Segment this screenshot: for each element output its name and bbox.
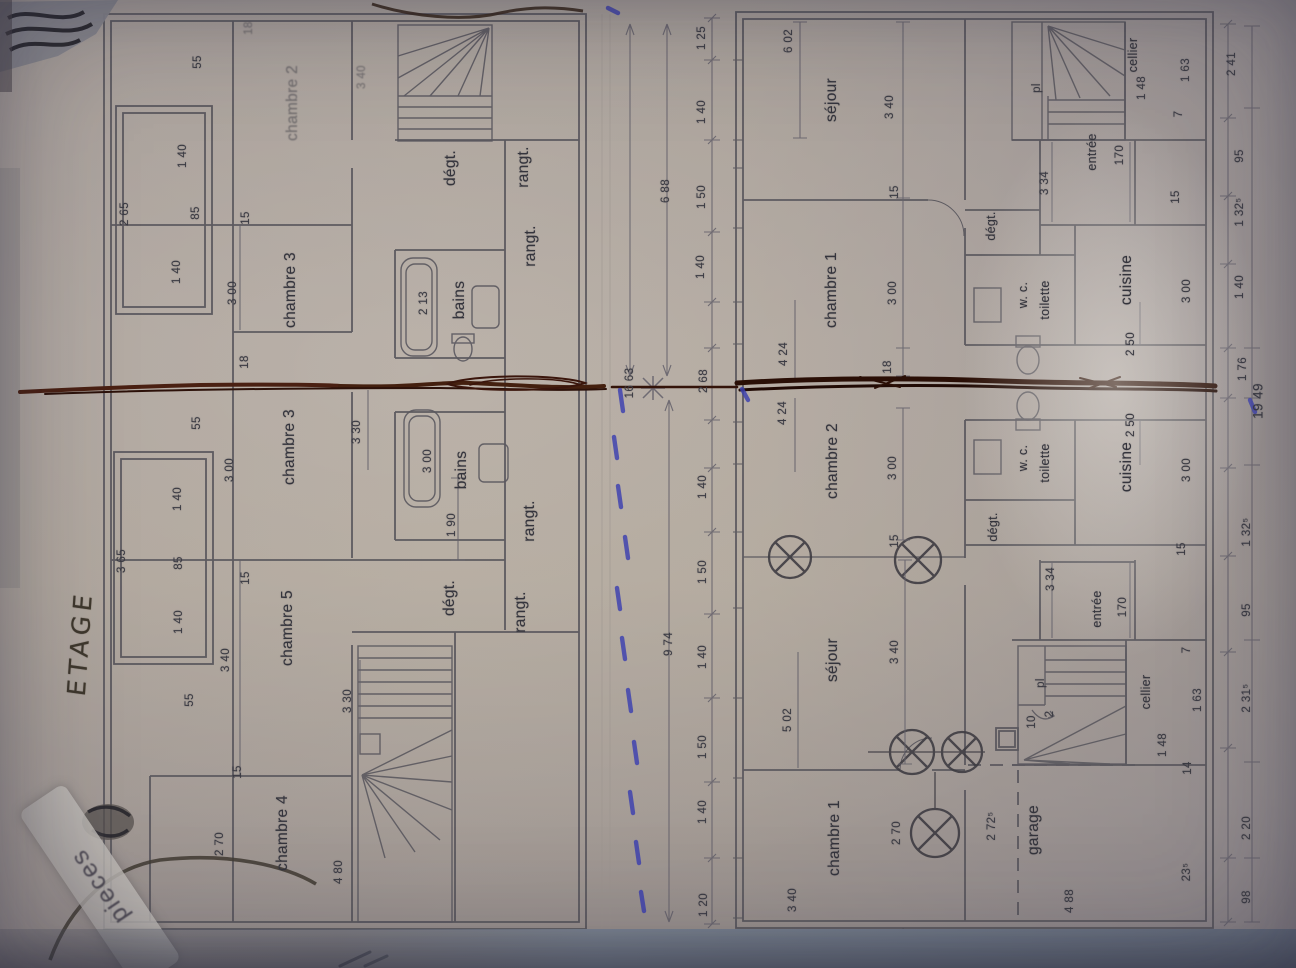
dimension-label: 3 34: [1045, 567, 1057, 591]
dimension-label: 1 32⁵: [1241, 517, 1253, 546]
dimension-label: 170: [1117, 597, 1129, 617]
floor-plan-photo: chambre 23 40chambre 3chambre 3chambre 5…: [0, 0, 1296, 968]
dimension-label: 3 40: [884, 95, 896, 119]
dimension-label: 1 63: [1192, 688, 1204, 712]
dimension-label: 3 34: [1039, 171, 1051, 195]
dimension-label: 2 20: [1241, 816, 1253, 840]
dimension-label: 15: [1170, 190, 1182, 204]
room-label: séjour: [823, 78, 841, 122]
dimension-label: 2 50: [1125, 413, 1137, 437]
dimension-label: 2 50: [1125, 332, 1137, 356]
room-label: entrée: [1090, 590, 1104, 627]
dimension-label: 1 48: [1157, 733, 1169, 757]
dimension-label: 95: [1234, 149, 1246, 163]
room-label: séjour: [824, 638, 842, 682]
room-label: cuisine: [1118, 255, 1136, 305]
dimension-label: 15: [1176, 542, 1188, 556]
dimension-label: 10: [1026, 715, 1038, 729]
dimension-label: 23⁵: [1181, 863, 1193, 882]
dimension-label: 98: [1241, 890, 1253, 904]
dimension-label: 4 88: [1064, 889, 1076, 913]
dimension-label: 5 02: [782, 708, 794, 732]
dimension-label: 4 24: [777, 401, 789, 425]
dimension-label: 170: [1114, 145, 1126, 165]
dimension-label: 4 24: [778, 342, 790, 366]
right-plan-labels-layer: 6 02séjour3 4015chambre 13 00184 24plcel…: [0, 0, 1296, 968]
dimension-label: 1 40: [1234, 275, 1246, 299]
room-label: garage: [1025, 805, 1043, 855]
dimension-label: 3 00: [1181, 279, 1193, 303]
room-label: toilette: [1038, 280, 1052, 319]
dimension-label: 14: [1182, 761, 1194, 775]
dimension-label: 95: [1241, 603, 1253, 617]
room-label: toilette: [1038, 443, 1052, 482]
dimension-label: 7: [1173, 111, 1185, 118]
room-label: w. c.: [1016, 282, 1030, 309]
dimension-label: 3 00: [887, 281, 899, 305]
room-label: w. c.: [1016, 445, 1030, 472]
dimension-label: 1 48: [1136, 76, 1148, 100]
dimension-label: 6 02: [783, 29, 795, 53]
dimension-label: 15: [889, 185, 901, 199]
dimension-label: 7: [1181, 647, 1193, 654]
dimension-label: 19 49: [1251, 383, 1266, 419]
room-label: dégt.: [986, 512, 1000, 541]
dimension-label: 2 72⁵: [986, 811, 998, 840]
dimension-label: 2 70: [891, 821, 903, 845]
dimension-label: 3 40: [889, 640, 901, 664]
room-label: chambre 2: [824, 423, 842, 499]
room-label: entrée: [1085, 133, 1099, 170]
dimension-label: 1 63: [1180, 58, 1192, 82]
dimension-label: 18: [882, 360, 894, 374]
room-label: cellier: [1126, 38, 1140, 73]
room-label: cellier: [1139, 675, 1153, 710]
room-label: chambre 1: [826, 800, 844, 876]
dimension-label: 2 41: [1226, 52, 1238, 76]
dimension-label: 2 31⁵: [1241, 683, 1253, 712]
room-label: cuisine: [1118, 442, 1136, 492]
room-label: dégt.: [984, 211, 998, 240]
dimension-label: 3 00: [1181, 458, 1193, 482]
dimension-label: 3 00: [887, 456, 899, 480]
dimension-label: 3 40: [787, 888, 799, 912]
dimension-label: pl: [1031, 83, 1043, 93]
dimension-label: 1 76: [1237, 357, 1249, 381]
room-label: chambre 1: [823, 252, 841, 328]
dimension-label: pl: [1035, 678, 1047, 688]
dimension-label: 1 32⁵: [1234, 197, 1246, 226]
dimension-label: 2: [1044, 711, 1056, 718]
dimension-label: 15: [889, 534, 901, 548]
